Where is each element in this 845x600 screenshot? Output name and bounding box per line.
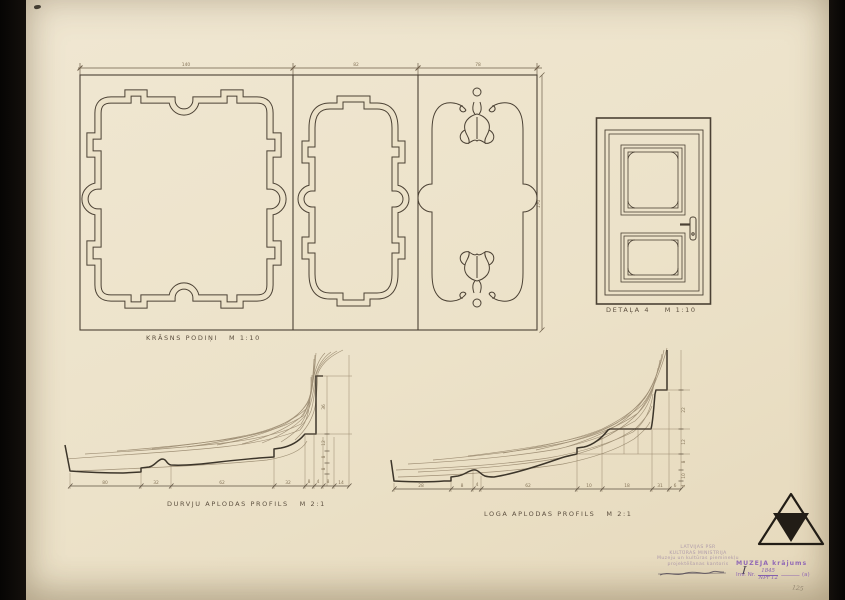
dimension-label: 22: [681, 407, 687, 413]
museum-stamp-title: MUZEJA krājums: [736, 560, 810, 567]
dimension-label: 8: [321, 455, 327, 458]
dimension-label: 4: [476, 482, 479, 488]
door-drawing: [595, 116, 715, 308]
stamp-dash: ———: [781, 571, 799, 579]
dimension-label: 78: [475, 62, 481, 68]
dimension-label: 10: [681, 473, 687, 479]
drawing-sheet: 140 82 78 170: [0, 0, 845, 600]
wood-grain: [396, 348, 667, 477]
wood-grain: [67, 350, 343, 471]
profile-right-drawing: 28 8 4 62 10 18 31 6 22 12 8 10 4: [388, 342, 698, 502]
door-upper-panel: [621, 145, 685, 215]
dimension-label: 62: [525, 483, 531, 489]
door-lower-panel: [621, 233, 685, 282]
dimension-label: 8: [681, 460, 687, 463]
dimension-label: 18: [624, 483, 630, 489]
dimension-label: 8: [461, 483, 464, 489]
dimension-label: 8: [308, 479, 311, 485]
dimension-label: 62: [219, 480, 225, 486]
inventory-suffix: (a): [802, 572, 810, 578]
panels-drawing: 140 82 78 170: [76, 58, 546, 343]
dimension-label: 31: [657, 483, 663, 489]
panel-2-cartouche: [301, 99, 406, 303]
panels-caption: KRĀSNS PODIŅI M 1:10: [146, 334, 261, 342]
dimension-label: 82: [353, 62, 359, 68]
door-handle: [680, 217, 696, 240]
dimension-label: 28: [418, 483, 424, 489]
scan-edge-left: [0, 0, 26, 600]
dimension-label: 14: [338, 480, 344, 486]
inventory-number: 1845 NPr 12: [758, 569, 778, 582]
inventory-label: Inv. Nr.: [736, 572, 755, 578]
panel-3-frame: [418, 88, 537, 307]
dimension-label: 32: [285, 480, 291, 486]
dimension-label: 140: [182, 62, 191, 68]
institution-stamp: LATVIJAS PSR KULTŪRAS MINISTRIJA Muzeju …: [652, 545, 744, 568]
paper-speck: [34, 4, 42, 9]
paper: 140 82 78 170: [26, 0, 829, 600]
profile-right-caption: LOGA APLODAS PROFILS M 2:1: [484, 510, 633, 518]
scan-edge-right: [829, 0, 845, 600]
profile-left-caption: DURVJU APLODAS PROFILS M 2:1: [167, 500, 326, 508]
museum-stamp: MUZEJA krājums Inv. Nr. 1845 NPr 12 ——— …: [736, 560, 810, 582]
handwritten-scribble: [656, 567, 736, 581]
door-caption: DETAĻA 4 M 1:10: [606, 306, 697, 314]
dimension-label: 8: [321, 467, 327, 470]
panel-1-cartouche: [85, 93, 283, 305]
dimension-label: 6: [674, 483, 677, 489]
dimension-label: 12: [681, 439, 687, 445]
triangle-logo-icon: [757, 492, 825, 548]
dimension-label: 4: [317, 479, 320, 485]
profile-left-drawing: 80 32 62 32 8 4 8 14 36 12 8 8: [57, 347, 352, 497]
dimension-chain: [392, 390, 684, 492]
dimension-label: 36: [321, 404, 327, 410]
dimension-label: 32: [153, 480, 159, 486]
pencil-note: 125: [792, 584, 804, 593]
dimension-label: 8: [327, 479, 330, 485]
dimension-label: 10: [586, 483, 592, 489]
dimension-label: 80: [102, 480, 108, 486]
dimension-label: 4: [681, 484, 687, 487]
dimension-label: 12: [321, 440, 327, 446]
